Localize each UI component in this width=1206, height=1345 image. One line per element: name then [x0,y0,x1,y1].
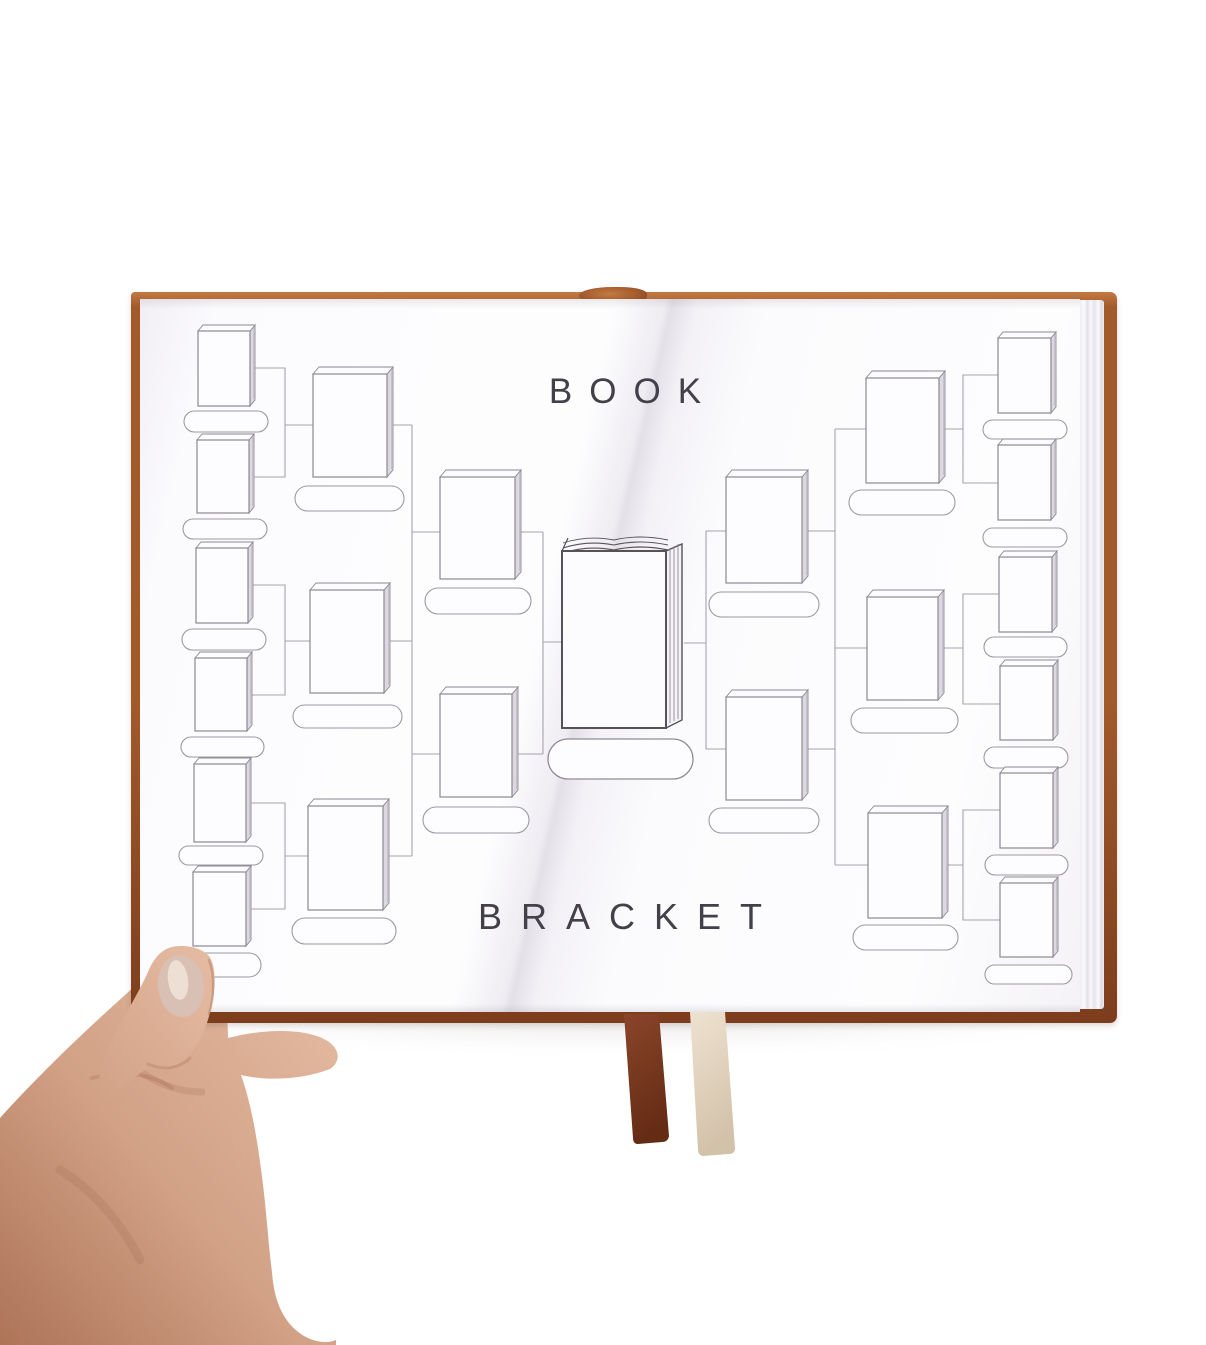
page-fore-edge [1080,300,1104,1009]
ribbon-bookmarks [600,1005,770,1170]
thumb [90,930,250,1105]
leather-ribbon-bookmark [624,1014,669,1144]
page-title-book: BOOK [520,372,730,412]
cream-ribbon-bookmark [690,1012,735,1156]
page-title-bracket: BRACKET [425,896,815,938]
scene: BOOK BRACKET [0,0,1206,1345]
